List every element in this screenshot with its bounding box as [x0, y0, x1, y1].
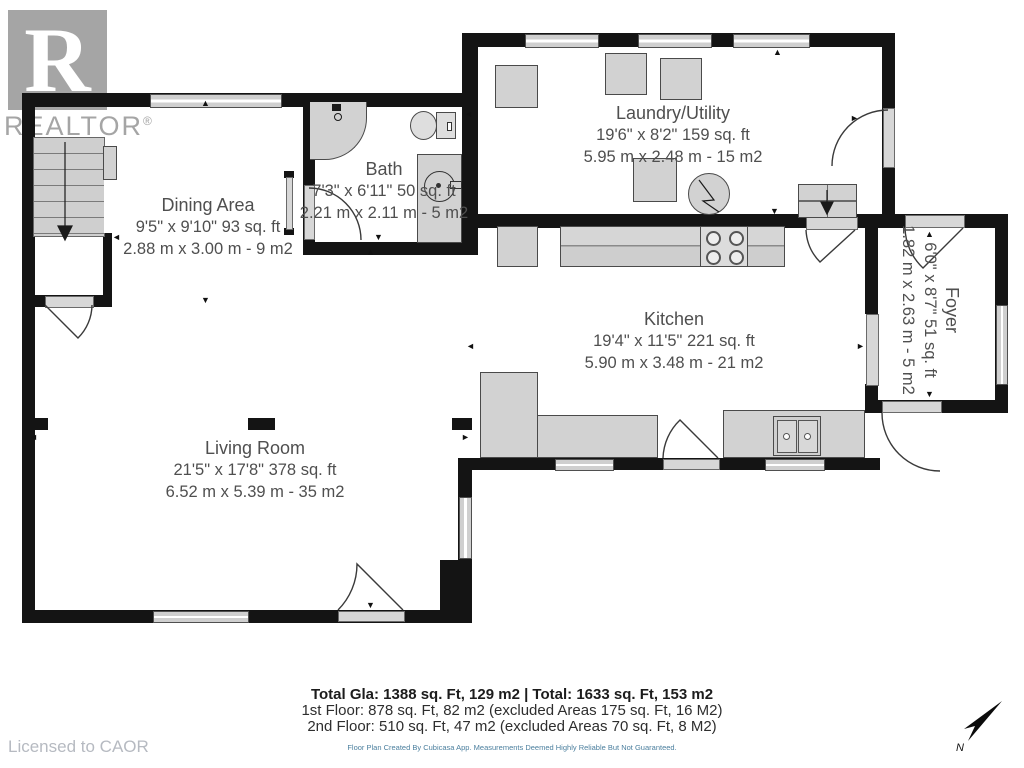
room-dims-imperial: 9'5" x 9'10" 93 sq. ft	[123, 216, 293, 238]
room-dims-imperial: 7'3" x 6'11" 50 sq. ft	[300, 180, 468, 202]
first-floor-line: 1st Floor: 878 sq. Ft, 82 m2 (excluded A…	[0, 703, 1024, 719]
door-arc-stairs-kitchen	[806, 230, 855, 262]
room-label-bath: Bath 7'3" x 6'11" 50 sq. ft 2.21 m x 2.1…	[300, 158, 468, 224]
door-swings-overlay	[0, 0, 1024, 768]
direction-marker-icon: ▲	[366, 248, 375, 257]
room-dims-metric: 2.88 m x 3.00 m - 9 m2	[123, 238, 293, 260]
room-dims-imperial: 21'5" x 17'8" 378 sq. ft	[166, 459, 345, 481]
direction-marker-icon: ▲	[201, 99, 210, 108]
room-label-foyer: Foyer 6'0" x 8'7" 51 sq. ft 1.82 m x 2.6…	[897, 225, 963, 395]
direction-marker-icon: ►	[850, 114, 859, 123]
second-floor-line: 2nd Floor: 510 sq. Ft, 47 m2 (excluded A…	[0, 719, 1024, 735]
sink-drain-icon	[804, 433, 811, 440]
floor-plan-page: R REALTOR®	[0, 0, 1024, 768]
sink-drain-icon	[783, 433, 790, 440]
room-dims-metric: 6.52 m x 5.39 m - 35 m2	[166, 481, 345, 503]
north-arrow-icon	[964, 701, 1002, 741]
disclaimer-text: Floor Plan Created By Cubicasa App. Meas…	[0, 743, 1024, 752]
room-dims-imperial: 6'0" x 8'7" 51 sq. ft	[919, 225, 941, 395]
door-arc-foyer-bottom	[882, 413, 940, 471]
room-name: Bath	[300, 158, 468, 180]
door-arc-closet	[45, 305, 92, 338]
licensed-to-text: Licensed to CAOR	[8, 737, 149, 757]
room-name: Laundry/Utility	[584, 102, 763, 124]
direction-marker-icon: ▼	[374, 233, 383, 242]
direction-marker-icon: ▼	[366, 601, 375, 610]
room-name: Living Room	[166, 437, 345, 459]
direction-marker-icon: ▼	[770, 207, 779, 216]
room-label-living: Living Room 21'5" x 17'8" 378 sq. ft 6.5…	[166, 437, 345, 503]
direction-marker-icon: ►	[856, 342, 865, 351]
door-arc-laundry	[832, 110, 888, 166]
door-arc-kitchen-bottom	[663, 420, 718, 458]
direction-marker-icon: ▼	[201, 296, 210, 305]
direction-marker-icon: ◄	[466, 342, 475, 351]
direction-marker-icon: ▲	[773, 48, 782, 57]
room-dims-metric: 5.95 m x 2.48 m - 15 m2	[584, 146, 763, 168]
room-dims-metric: 5.90 m x 3.48 m - 21 m2	[585, 352, 764, 374]
room-dims-imperial: 19'4" x 11'5" 221 sq. ft	[585, 330, 764, 352]
direction-marker-icon: ►	[461, 433, 470, 442]
direction-marker-icon: ◄	[464, 110, 473, 119]
room-label-dining: Dining Area 9'5" x 9'10" 93 sq. ft 2.88 …	[123, 194, 293, 260]
area-summary: Total Gla: 1388 sq. Ft, 129 m2 | Total: …	[0, 686, 1024, 752]
room-label-laundry: Laundry/Utility 19'6" x 8'2" 159 sq. ft …	[584, 102, 763, 168]
room-dims-imperial: 19'6" x 8'2" 159 sq. ft	[584, 124, 763, 146]
room-name: Dining Area	[123, 194, 293, 216]
room-dims-metric: 2.21 m x 2.11 m - 5 m2	[300, 202, 468, 224]
direction-marker-icon: ◄	[29, 433, 38, 442]
north-label: N	[956, 742, 964, 754]
north-arrow: N	[940, 685, 1020, 763]
water-heater-zigzag-icon	[699, 180, 719, 212]
total-area-line: Total Gla: 1388 sq. Ft, 129 m2 | Total: …	[0, 686, 1024, 703]
direction-marker-icon: ◄	[112, 233, 121, 242]
room-name: Kitchen	[585, 308, 764, 330]
room-name: Foyer	[941, 225, 963, 395]
room-dims-metric: 1.82 m x 2.63 m - 5 m2	[897, 225, 919, 395]
stair-down-arrow-icon	[58, 226, 72, 240]
room-label-kitchen: Kitchen 19'4" x 11'5" 221 sq. ft 5.90 m …	[585, 308, 764, 374]
stair-down-arrow-small-icon	[821, 202, 833, 214]
